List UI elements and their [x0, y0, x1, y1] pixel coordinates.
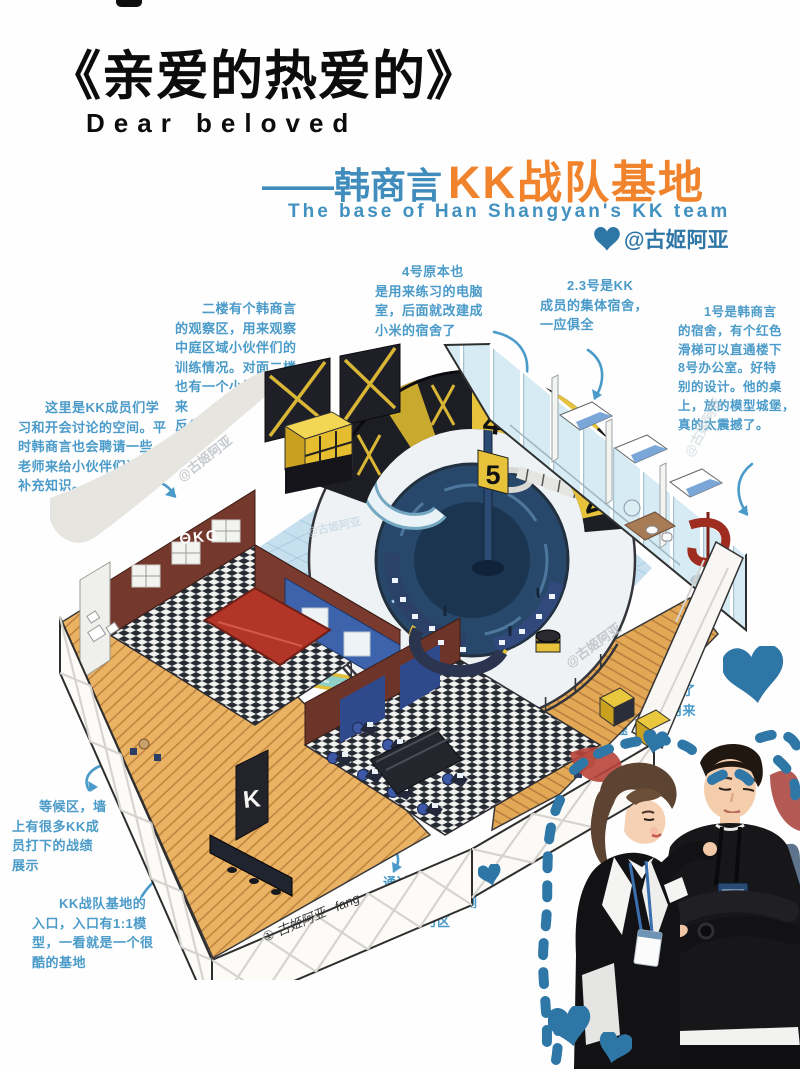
- poster-subtitle-en: The base of Han Shangyan's KK team: [288, 201, 730, 223]
- dashed-border-decoration: [460, 720, 800, 1069]
- poster-title-cn: 《亲爱的热爱的》: [48, 34, 480, 110]
- door-number-5: 5: [485, 460, 500, 490]
- top-edge-mark: [116, 0, 142, 7]
- author-credit: @古姬阿亚: [594, 224, 728, 254]
- annotation-dorm23: 2.3号是KK 成员的集体宿舍， 一应俱全: [540, 276, 690, 335]
- poster-page: 《亲爱的热爱的》 Dear beloved ——韩商言 KK战队基地 The b…: [0, 0, 800, 1069]
- heart-icon: [594, 227, 620, 251]
- striped-stool: [536, 630, 560, 652]
- heart-icon: [548, 1006, 592, 1047]
- poster-title-en: Dear beloved: [86, 108, 357, 139]
- heart-icon: [642, 730, 668, 754]
- author-credit-text: @古姬阿亚: [624, 224, 728, 254]
- heart-icon: [598, 1032, 632, 1064]
- heart-icon: [723, 646, 785, 704]
- observe-box: [285, 412, 352, 494]
- entry-letter: K: [242, 785, 263, 814]
- svg-text:@古姬阿亚: @古姬阿亚: [681, 395, 725, 459]
- heart-icon: [478, 864, 502, 886]
